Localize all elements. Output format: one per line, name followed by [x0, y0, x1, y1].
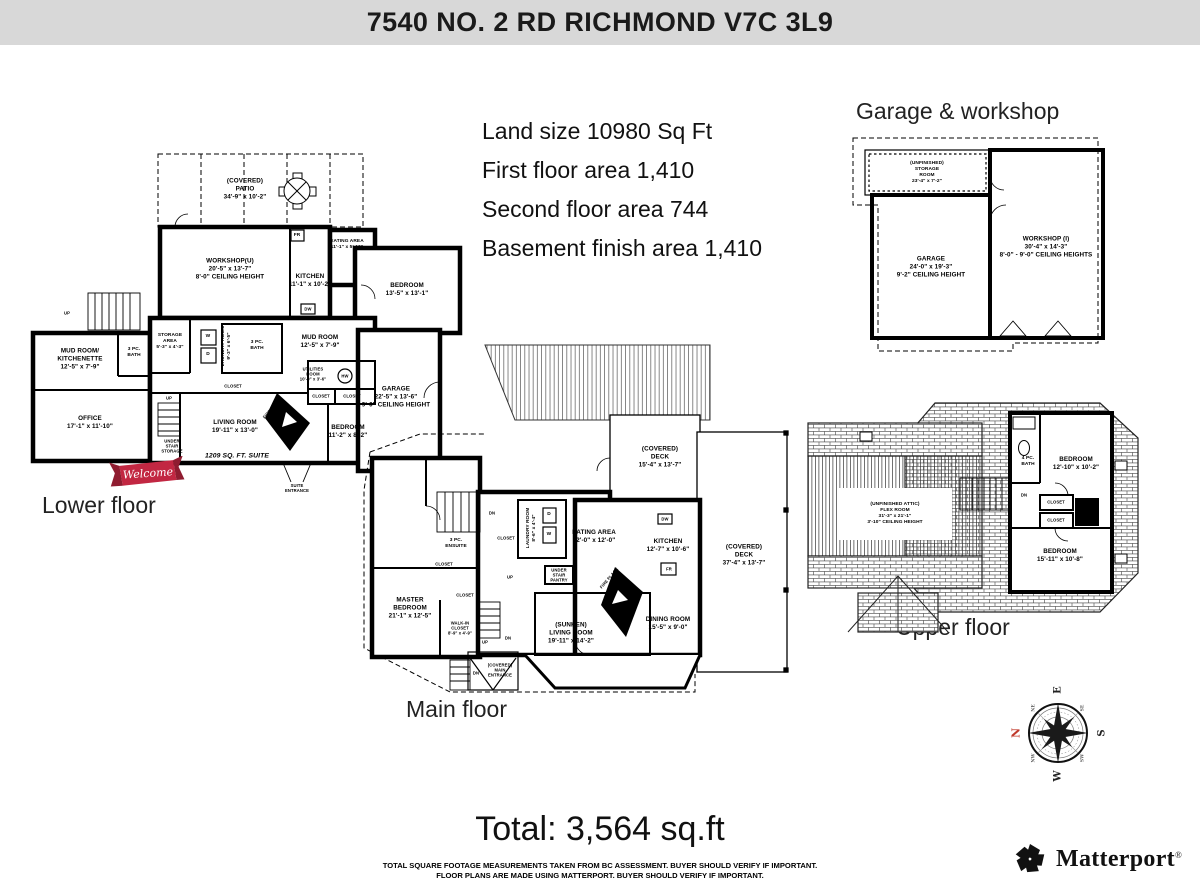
closet-label: CLOSET — [497, 535, 515, 540]
down-label: DN — [473, 670, 479, 675]
toilet-icon — [1019, 441, 1030, 456]
closet-label: CLOSET — [312, 393, 330, 398]
garage-workshop-drawing — [850, 131, 1140, 361]
stairwell-void — [1075, 498, 1099, 526]
fridge-label: FR — [294, 233, 301, 239]
compass-east: E — [1053, 686, 1064, 694]
room-label-master: MASTER BEDROOM 21'-1" x 12'-5" — [389, 597, 432, 622]
welcome-ribbon: Welcome — [108, 456, 186, 492]
room-label-workshop: WORKSHOP (I) 30'-4" x 14'-3" 8'-0" - 9'-… — [1000, 236, 1093, 261]
dishwasher-label: DW — [304, 306, 311, 311]
room-label-deck-large: (COVERED) DECK 37'-4" x 13'-7" — [723, 544, 766, 569]
compass-northeast: NE — [1031, 704, 1037, 712]
area-summary: Land size 10980 Sq Ft First floor area 1… — [482, 112, 762, 268]
up-label: UP — [166, 395, 172, 400]
room-label-office: OFFICE 17'-1" x 11'-10" — [67, 415, 113, 431]
room-label-mudroom: MUD ROOM 12'-5" x 7'-9" — [300, 334, 339, 350]
suite-area-label: 1209 SQ. FT. SUITE — [205, 453, 269, 462]
up-label: UP — [64, 310, 70, 315]
compass-northwest: NW — [1031, 752, 1037, 762]
room-label-kitchen: KITCHEN 12'-7" x 10'-6" — [647, 538, 690, 554]
room-label-garage: GARAGE 24'-0" x 19'-3" 9'-2" CEILING HEI… — [897, 256, 965, 281]
compass-north: N — [1010, 728, 1023, 738]
main-entrance-label: (COVERED) MAIN ENTRANCE — [488, 662, 512, 677]
room-label-eating-area: EATING AREA 11'-1" x 5'-10" — [330, 239, 364, 251]
closet-label: CLOSET — [224, 383, 242, 388]
washer-label: W — [547, 532, 552, 538]
skylight-icon — [1115, 461, 1127, 470]
door-arc — [597, 458, 610, 471]
upper-floor-drawing — [800, 396, 1140, 636]
room-label-laundry: LAUNDRY ROOM 8'-6" x 4'-4" — [526, 508, 538, 549]
room-label-sunken-living: (SUNKEN) LIVING ROOM 19'-11" x 14'-2" — [548, 622, 594, 647]
room-label-eating: EATING AREA 12'-0" x 12'-0" — [572, 529, 616, 545]
room-label-bath-center: 3 PC. BATH — [250, 340, 263, 352]
summary-first-floor: First floor area 1,410 — [482, 151, 762, 190]
closet-label: CLOSET — [1047, 517, 1065, 522]
garage-workshop-plan: (UNFINISHED) STORAGE ROOM 23'-4" x 7'-2"… — [850, 131, 1140, 361]
room-label-ensuite: 3 PC. ENSUITE — [445, 538, 467, 550]
closet-label: CLOSET — [343, 393, 361, 398]
room-label-deck-small: (COVERED) DECK 15'-4" x 13'-7" — [639, 446, 682, 471]
room-label-bedroom-1: BEDROOM 12'-10" x 10'-2" — [1053, 456, 1099, 472]
summary-basement: Basement finish area 1,410 — [482, 229, 762, 268]
dryer-label: D — [547, 512, 551, 518]
room-label-bath-left: 3 PC. BATH — [127, 347, 140, 359]
room-label-storage: (UNFINISHED) STORAGE ROOM 23'-4" x 7'-2" — [910, 161, 944, 185]
room-label-utilities: UTILITIES ROOM 10'-0" x 3'-6" — [300, 366, 326, 381]
compass-southwest: SW — [1080, 753, 1086, 762]
room-label-mud-kitchenette: MUD ROOM/ KITCHENETTE 12'-5" x 7'-9" — [57, 348, 102, 373]
closet-label: CLOSET — [456, 592, 474, 597]
patio-table-icon — [279, 173, 316, 209]
closet-label: CLOSET — [1047, 499, 1065, 504]
matterport-logo: Matterport® — [1012, 836, 1192, 882]
room-label-bedroom-1: BEDROOM 13'-5" x 13'-1" — [386, 282, 429, 298]
roof-hatch — [485, 345, 710, 420]
main-floor-title: Main floor — [406, 696, 507, 723]
closet-label: CLOSET — [435, 561, 453, 566]
compass-southeast: SE — [1080, 704, 1086, 711]
room-label-living: LIVING ROOM 19'-11" x 13'-0" — [212, 419, 258, 435]
sink-icon — [1013, 417, 1035, 429]
garage-workshop-title: Garage & workshop — [856, 98, 1059, 125]
room-label-storage-area: STORAGE AREA 5'-3" x 4'-3" — [156, 333, 183, 351]
up-label: UP — [507, 574, 513, 579]
dishwasher-label: DW — [661, 516, 668, 521]
address-title: 7540 NO. 2 RD RICHMOND V7C 3L9 — [0, 0, 1200, 45]
room-label-patio: (COVERED) PATIO 34'-9" x 10'-2" — [224, 178, 267, 203]
room-label-flex: (UNFINISHED ATTIC) FLEX ROOM 31'-3" x 21… — [867, 502, 922, 526]
matterport-logo-icon — [1012, 841, 1048, 877]
summary-land-size: Land size 10980 Sq Ft — [482, 112, 762, 151]
matterport-wordmark: Matterport — [1056, 846, 1175, 872]
skylight-icon — [1115, 554, 1127, 563]
down-label: DN — [1021, 492, 1027, 497]
compass-south: S — [1097, 729, 1108, 736]
registered-mark: ® — [1175, 850, 1182, 860]
down-label: DN — [489, 510, 495, 515]
main-floor-plan: (COVERED) DECK 15'-4" x 13'-7" (COVERED)… — [360, 338, 795, 698]
up-label: UP — [482, 639, 488, 644]
floor-plan-sheet: 7540 NO. 2 RD RICHMOND V7C 3L9 Land size… — [0, 0, 1200, 887]
hot-water-label: HW — [341, 373, 348, 378]
room-label-under-stair: UNDER STAIR STORAGE — [161, 438, 182, 453]
compass-west: W — [1053, 770, 1064, 783]
suite-entrance-label: SUITE ENTRANCE — [285, 483, 309, 493]
washer-label: W — [206, 334, 211, 340]
fridge-label: FR — [666, 566, 672, 571]
room-label-dining: DINING ROOM 15'-5" x 9'-0" — [646, 616, 690, 632]
summary-second-floor: Second floor area 744 — [482, 190, 762, 229]
upper-floor-plan: (UNFINISHED ATTIC) FLEX ROOM 31'-3" x 21… — [800, 396, 1140, 636]
room-label-pantry: UNDER STAIR PANTRY — [550, 567, 567, 582]
down-label: DN — [505, 635, 511, 640]
dryer-label: D — [206, 352, 210, 358]
room-label-bath: 4 PC. BATH — [1021, 456, 1034, 468]
room-label-bedroom-2: BEDROOM 15'-11" x 10'-8" — [1037, 548, 1083, 564]
room-label-laundry: LAUNDRY ROOM 9'-3" x 6'-5" — [221, 326, 233, 367]
room-label-walk-in: WALK-IN CLOSET 8'-9" x 4'-9" — [448, 620, 472, 635]
compass-rose: N E S W NE SE SW NW — [1008, 681, 1108, 785]
suite-entrance-doors — [283, 463, 311, 482]
room-label-workshop-u: WORKSHOP(U) 20'-5" x 13'-7" 8'-0" CEILIN… — [196, 258, 264, 283]
room-label-kitchen: KITCHEN 11'-1" x 10'-2" — [289, 273, 331, 289]
